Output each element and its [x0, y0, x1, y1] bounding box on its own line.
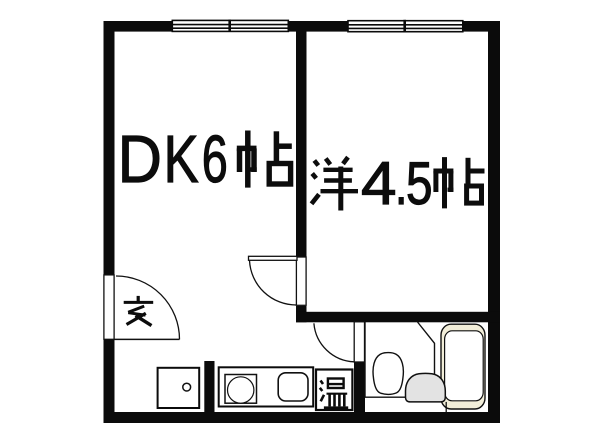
svg-text:K: K — [164, 122, 199, 197]
svg-text:6: 6 — [202, 123, 228, 197]
svg-text:4: 4 — [361, 151, 396, 218]
svg-text:5: 5 — [406, 150, 433, 218]
svg-text:D: D — [118, 121, 162, 196]
